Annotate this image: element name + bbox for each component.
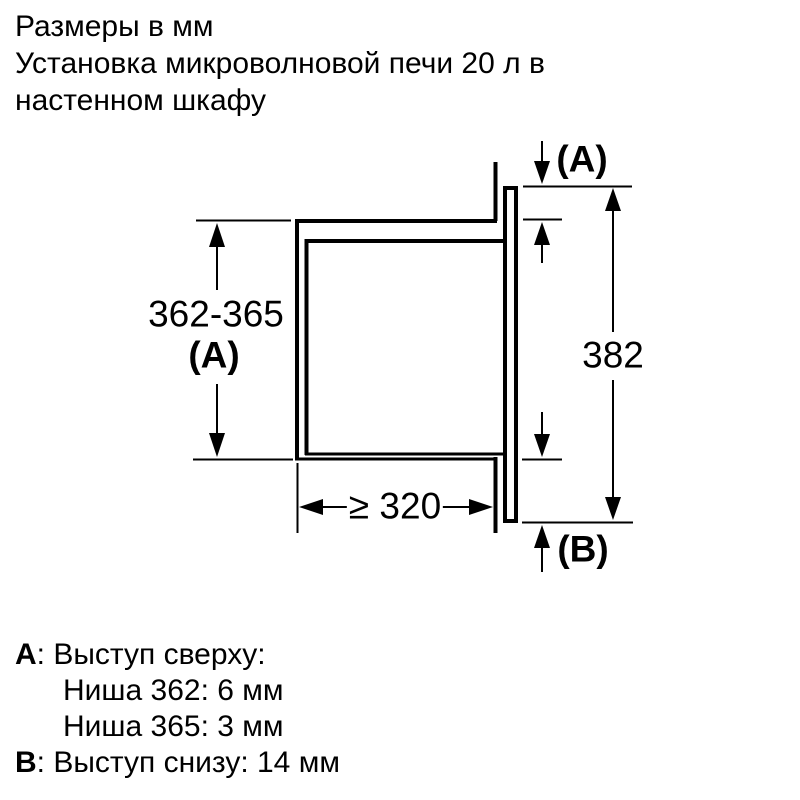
arrowhead-down-icon <box>605 497 621 520</box>
cabinet-niche-outline <box>295 162 497 533</box>
niche-height-ref-label: (A) <box>186 337 241 374</box>
arrowhead-down-icon <box>534 434 550 457</box>
arrowhead-up-icon <box>534 525 550 548</box>
arrowhead-down-icon <box>209 433 225 457</box>
niche-depth-label: ≥ 320 <box>347 488 443 525</box>
legend-item-a-sub-1: Ниша 362: 6 мм <box>15 673 340 709</box>
microwave-front-frame <box>505 188 516 521</box>
top-protrusion-ref-label: (A) <box>554 141 609 178</box>
legend: A: Выступ сверху: Ниша 362: 6 мм Ниша 36… <box>15 637 340 781</box>
bottom-protrusion-ref-label: (B) <box>555 531 610 568</box>
arrowhead-down-icon <box>534 161 550 184</box>
arrowhead-up-icon <box>209 223 225 247</box>
niche-height-label: 362-365 <box>146 296 286 333</box>
arrowhead-right-icon <box>469 499 493 515</box>
arrowhead-left-icon <box>299 499 323 515</box>
legend-item-a: A: Выступ сверху: <box>15 637 340 673</box>
frame-height-label: 382 <box>580 337 646 374</box>
legend-text-a: : Выступ сверху: <box>37 638 266 671</box>
legend-key-a: A <box>15 638 37 671</box>
dimension-drawing-page: Размеры в мм Установка микроволновой печ… <box>0 0 800 800</box>
arrowhead-up-icon <box>605 188 621 211</box>
arrowhead-up-icon <box>534 222 550 245</box>
legend-item-a-sub-2: Ниша 365: 3 мм <box>15 709 340 745</box>
legend-key-b: B <box>15 746 37 779</box>
microwave-body-outline <box>305 239 504 455</box>
legend-item-b: B: Выступ снизу: 14 мм <box>15 745 340 781</box>
legend-text-b: : Выступ снизу: 14 мм <box>37 746 340 779</box>
